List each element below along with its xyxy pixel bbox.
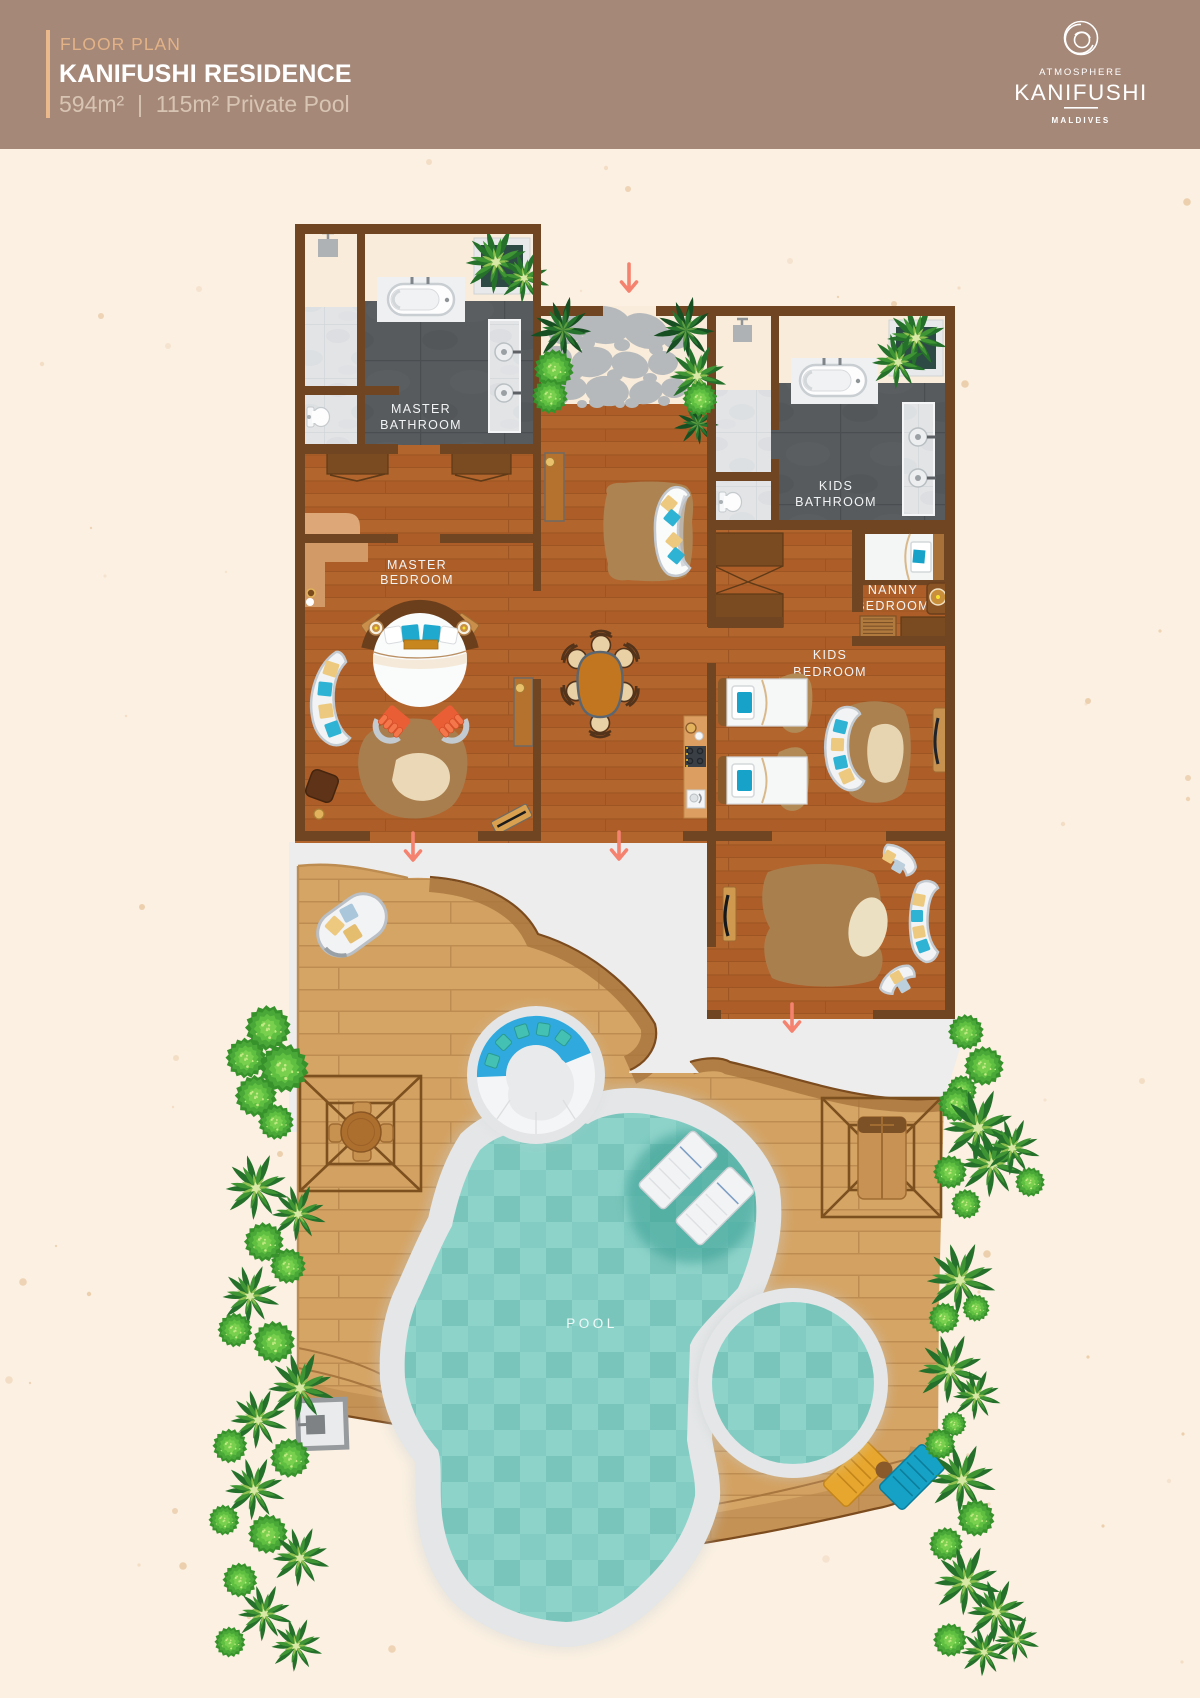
svg-text:BEDROOM: BEDROOM: [380, 573, 454, 587]
svg-text:MASTER: MASTER: [391, 402, 451, 416]
svg-text:BATHROOM: BATHROOM: [795, 495, 877, 509]
svg-text:KIDS: KIDS: [813, 648, 847, 662]
svg-text:KANIFUSHI RESIDENCE: KANIFUSHI RESIDENCE: [59, 60, 352, 88]
svg-text:MASTER: MASTER: [387, 558, 447, 572]
svg-text:POOL: POOL: [566, 1316, 618, 1331]
svg-text:594m² | 115m² Private Pool: 594m² | 115m² Private Pool: [59, 91, 350, 117]
svg-text:MALDIVES: MALDIVES: [1052, 116, 1111, 125]
svg-text:FLOOR PLAN: FLOOR PLAN: [60, 34, 181, 54]
svg-text:BATHROOM: BATHROOM: [380, 418, 462, 432]
svg-text:ATMOSPHERE: ATMOSPHERE: [1039, 67, 1123, 78]
svg-text:KIDS: KIDS: [819, 479, 853, 493]
svg-text:NANNY: NANNY: [868, 583, 918, 597]
svg-text:KANIFUSHI: KANIFUSHI: [1014, 80, 1148, 105]
svg-text:BEDROOM: BEDROOM: [856, 599, 930, 613]
